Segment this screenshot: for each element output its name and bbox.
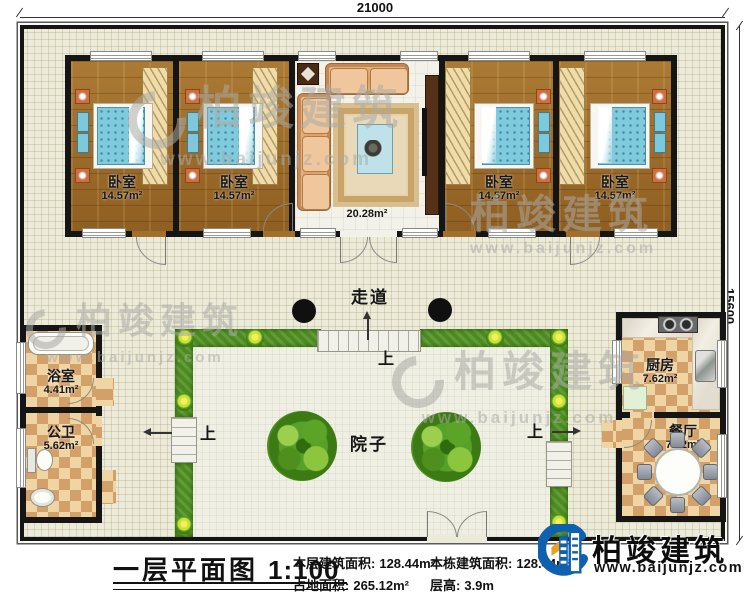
flower-bush [550, 329, 568, 347]
sofa-side [297, 93, 331, 211]
sofa-cushion [302, 98, 330, 134]
kitchen-sink [695, 350, 716, 382]
bed-sheet [482, 107, 496, 163]
window [400, 51, 438, 61]
nightstand-lamp [185, 89, 200, 104]
window [202, 51, 264, 61]
window [16, 342, 26, 394]
table-decor [364, 140, 384, 160]
sofa-cushion [370, 68, 408, 94]
arrow-line [150, 432, 172, 434]
nightstand-lamp [536, 168, 551, 183]
bed [588, 89, 667, 181]
window [300, 228, 336, 238]
window [612, 340, 622, 384]
bedside-table [187, 112, 199, 132]
column [428, 298, 452, 322]
dining-chair [703, 464, 718, 480]
window [584, 51, 646, 61]
stat-footprint-area: 占地面积:265.12m² [293, 575, 409, 594]
tv [422, 108, 427, 176]
sofa-cushion [330, 68, 368, 94]
stat-storey-height: 层高:3.9m [430, 575, 494, 594]
stairs-up-label: 上 [378, 345, 394, 369]
nightstand-lamp [652, 89, 667, 104]
bedside-table [77, 112, 89, 132]
brand-website: www.baijunjz.com [594, 560, 743, 576]
yard-label: 院子 [350, 430, 388, 455]
sofa-cushion [302, 136, 330, 172]
fridge [623, 386, 647, 410]
corridor-label: 走道 [330, 283, 410, 308]
plan-title-text: 一层平面图 [113, 555, 258, 585]
brand-logo: 柏竣建筑 www.baijunjz.com [538, 520, 748, 594]
bed-sheet [598, 107, 612, 163]
flower-bush [175, 516, 193, 534]
tree [267, 411, 337, 481]
washbasin [30, 488, 55, 507]
flower-bush [550, 393, 568, 411]
dining-chair [637, 464, 652, 480]
window [298, 51, 336, 61]
footer: 一层平面图1:100 本层建筑面积:128.44m² 占地面积:265.12m²… [0, 546, 750, 594]
arrow-up [363, 311, 371, 319]
door-opening [96, 378, 102, 406]
wardrobe [559, 67, 585, 185]
bed-sheet [129, 107, 143, 163]
nightstand-lamp [536, 89, 551, 104]
arrow-left [143, 428, 151, 436]
bedside-table [77, 133, 89, 153]
toilet-tank [27, 448, 36, 473]
stove [658, 316, 698, 333]
bed-sheet [239, 107, 253, 163]
sofa-cushion [302, 174, 330, 210]
nightstand-lamp [652, 168, 667, 183]
threshold [102, 470, 116, 504]
flower-bush [176, 329, 194, 347]
bedside-table [538, 112, 550, 132]
arrow-line [552, 431, 574, 433]
bed [472, 89, 551, 181]
column [292, 299, 316, 323]
floor-plan: 21000 15600 卧室 14.57m² 卧室 14.57m² [0, 0, 750, 594]
door-opening [96, 416, 102, 446]
nightstand-lamp [75, 168, 90, 183]
flower-bush [246, 329, 264, 347]
brand-logo-icon [538, 524, 588, 584]
flower-bush [486, 329, 504, 347]
window [488, 228, 536, 238]
toilet-bowl [36, 449, 53, 471]
wardrobe [445, 67, 471, 185]
window [402, 228, 438, 238]
window [203, 228, 251, 238]
stairs-central [317, 330, 421, 352]
bedside-table [654, 112, 666, 132]
window [717, 340, 727, 388]
door-opening [616, 420, 622, 448]
dining-table [654, 448, 702, 496]
corner-cabinet [297, 63, 319, 85]
bedside-table [538, 133, 550, 153]
stairs-up-label: 上 [200, 420, 216, 444]
bed [185, 89, 264, 181]
dining-chair [670, 432, 685, 448]
window [82, 228, 126, 238]
room-label: 厨房 7.62m² [622, 358, 698, 386]
dimension-line-top [20, 17, 725, 18]
bedside-table [654, 133, 666, 153]
tree [411, 412, 481, 482]
stairs-left [171, 417, 197, 463]
window [717, 434, 727, 498]
threshold [602, 420, 616, 448]
door-opening [443, 231, 476, 237]
bedside-table [187, 133, 199, 153]
stairs-right [546, 441, 572, 487]
window [614, 228, 658, 238]
kitchen-dining-opening [630, 412, 654, 418]
sofa-top [325, 63, 409, 95]
bed [75, 89, 154, 181]
window [468, 51, 530, 61]
arrow-right [573, 427, 581, 435]
dimension-line-right [739, 25, 740, 541]
bathtub [28, 332, 94, 355]
dimension-width: 21000 [330, 0, 420, 15]
arrow-line [367, 318, 369, 340]
door-opening [263, 231, 295, 237]
window [90, 51, 152, 61]
stairs-up-label: 上 [527, 418, 543, 442]
threshold [102, 378, 114, 406]
dining-chair [670, 497, 685, 513]
nightstand-lamp [185, 168, 200, 183]
window [16, 428, 26, 488]
tv-cabinet [425, 75, 439, 215]
stat-floor-area: 本层建筑面积:128.44m² [293, 553, 435, 572]
flower-bush [175, 393, 193, 411]
nightstand-lamp [75, 89, 90, 104]
